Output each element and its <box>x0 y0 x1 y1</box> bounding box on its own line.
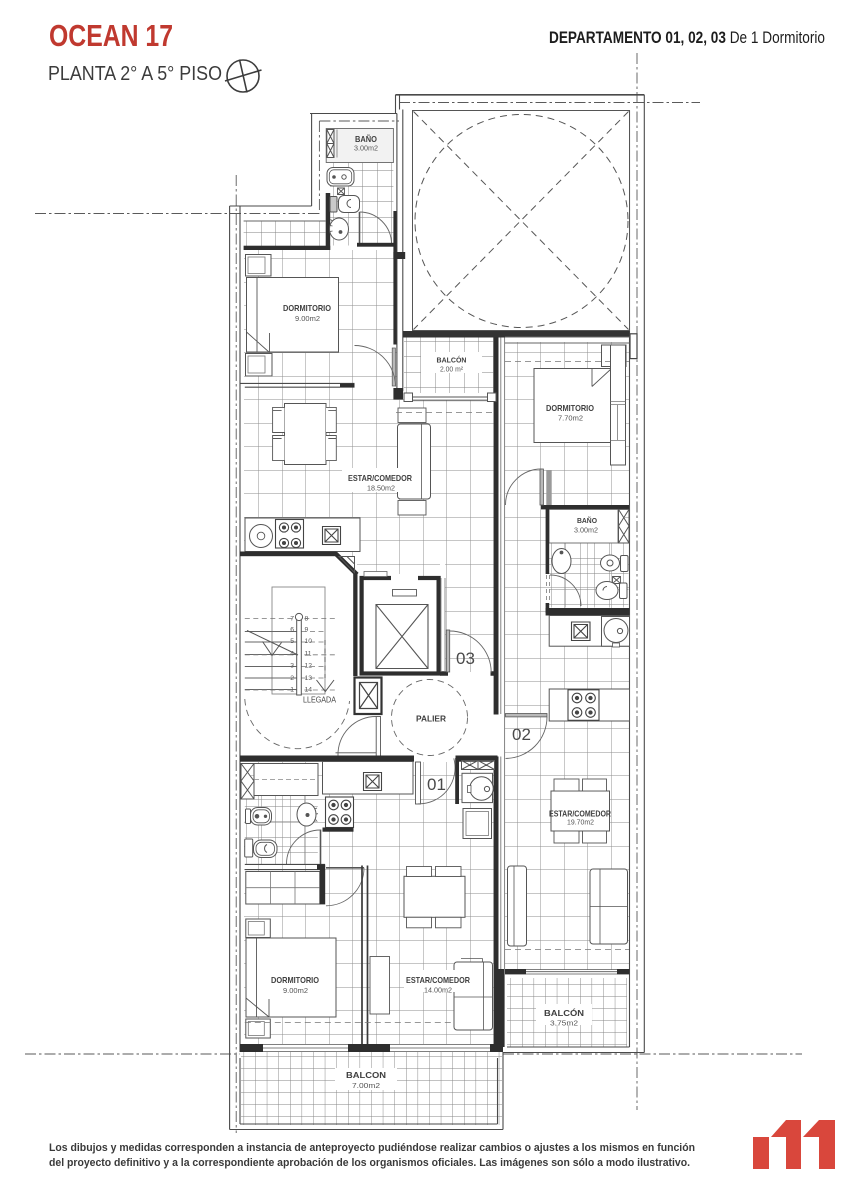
svg-text:10: 10 <box>305 638 313 645</box>
svg-text:7.70m2: 7.70m2 <box>558 414 583 423</box>
svg-text:4: 4 <box>290 651 294 658</box>
svg-text:19.70m2: 19.70m2 <box>567 818 594 827</box>
svg-text:BALCÓN: BALCÓN <box>437 356 467 365</box>
svg-text:BAÑO: BAÑO <box>577 516 597 525</box>
svg-text:PLANTA 2° A 5° PISO: PLANTA 2° A 5° PISO <box>48 63 222 85</box>
svg-text:6: 6 <box>290 627 294 634</box>
svg-text:LLEGADA: LLEGADA <box>303 696 337 705</box>
svg-text:01: 01 <box>427 775 446 794</box>
svg-text:OCEAN 17: OCEAN 17 <box>49 18 173 53</box>
svg-text:DORMITORIO: DORMITORIO <box>271 976 320 985</box>
svg-text:3.00m2: 3.00m2 <box>574 526 598 535</box>
svg-text:3.75m2: 3.75m2 <box>550 1019 578 1028</box>
svg-text:1: 1 <box>290 687 294 694</box>
svg-text:3: 3 <box>290 663 294 670</box>
svg-text:13: 13 <box>305 675 313 682</box>
svg-text:8: 8 <box>305 616 309 623</box>
svg-text:03: 03 <box>456 649 475 668</box>
svg-text:DEPARTAMENTO 01, 02, 03 De 1 D: DEPARTAMENTO 01, 02, 03 De 1 Dormitorio <box>549 28 825 47</box>
svg-text:2.00 m²: 2.00 m² <box>440 365 464 374</box>
svg-text:BALCON: BALCON <box>346 1071 386 1080</box>
svg-text:7.00m2: 7.00m2 <box>352 1081 380 1090</box>
svg-text:18.50m2: 18.50m2 <box>367 484 395 493</box>
svg-text:PALIER: PALIER <box>416 715 446 724</box>
svg-text:DORMITORIO: DORMITORIO <box>546 404 595 413</box>
svg-text:2: 2 <box>290 675 294 682</box>
svg-text:del proyecto definitivo y a la: del proyecto definitivo y a la correspon… <box>49 1157 690 1169</box>
svg-text:11: 11 <box>305 651 312 658</box>
svg-text:14.00m2: 14.00m2 <box>424 986 452 995</box>
svg-text:14: 14 <box>305 687 313 694</box>
svg-text:ESTAR/COMEDOR: ESTAR/COMEDOR <box>348 474 412 483</box>
svg-text:7: 7 <box>290 616 294 623</box>
svg-text:9.00m2: 9.00m2 <box>295 314 320 323</box>
svg-text:12: 12 <box>305 663 313 670</box>
svg-text:3.00m2: 3.00m2 <box>354 144 378 153</box>
svg-text:ESTAR/COMEDOR: ESTAR/COMEDOR <box>406 976 470 985</box>
svg-text:5: 5 <box>290 638 294 645</box>
svg-text:9.00m2: 9.00m2 <box>283 986 308 995</box>
svg-text:BALCÓN: BALCÓN <box>544 1009 584 1018</box>
svg-text:Los dibujos y medidas correspo: Los dibujos y medidas corresponden a ins… <box>49 1142 695 1154</box>
svg-text:DORMITORIO: DORMITORIO <box>283 304 332 313</box>
svg-text:9: 9 <box>305 627 309 634</box>
svg-text:02: 02 <box>512 725 531 744</box>
